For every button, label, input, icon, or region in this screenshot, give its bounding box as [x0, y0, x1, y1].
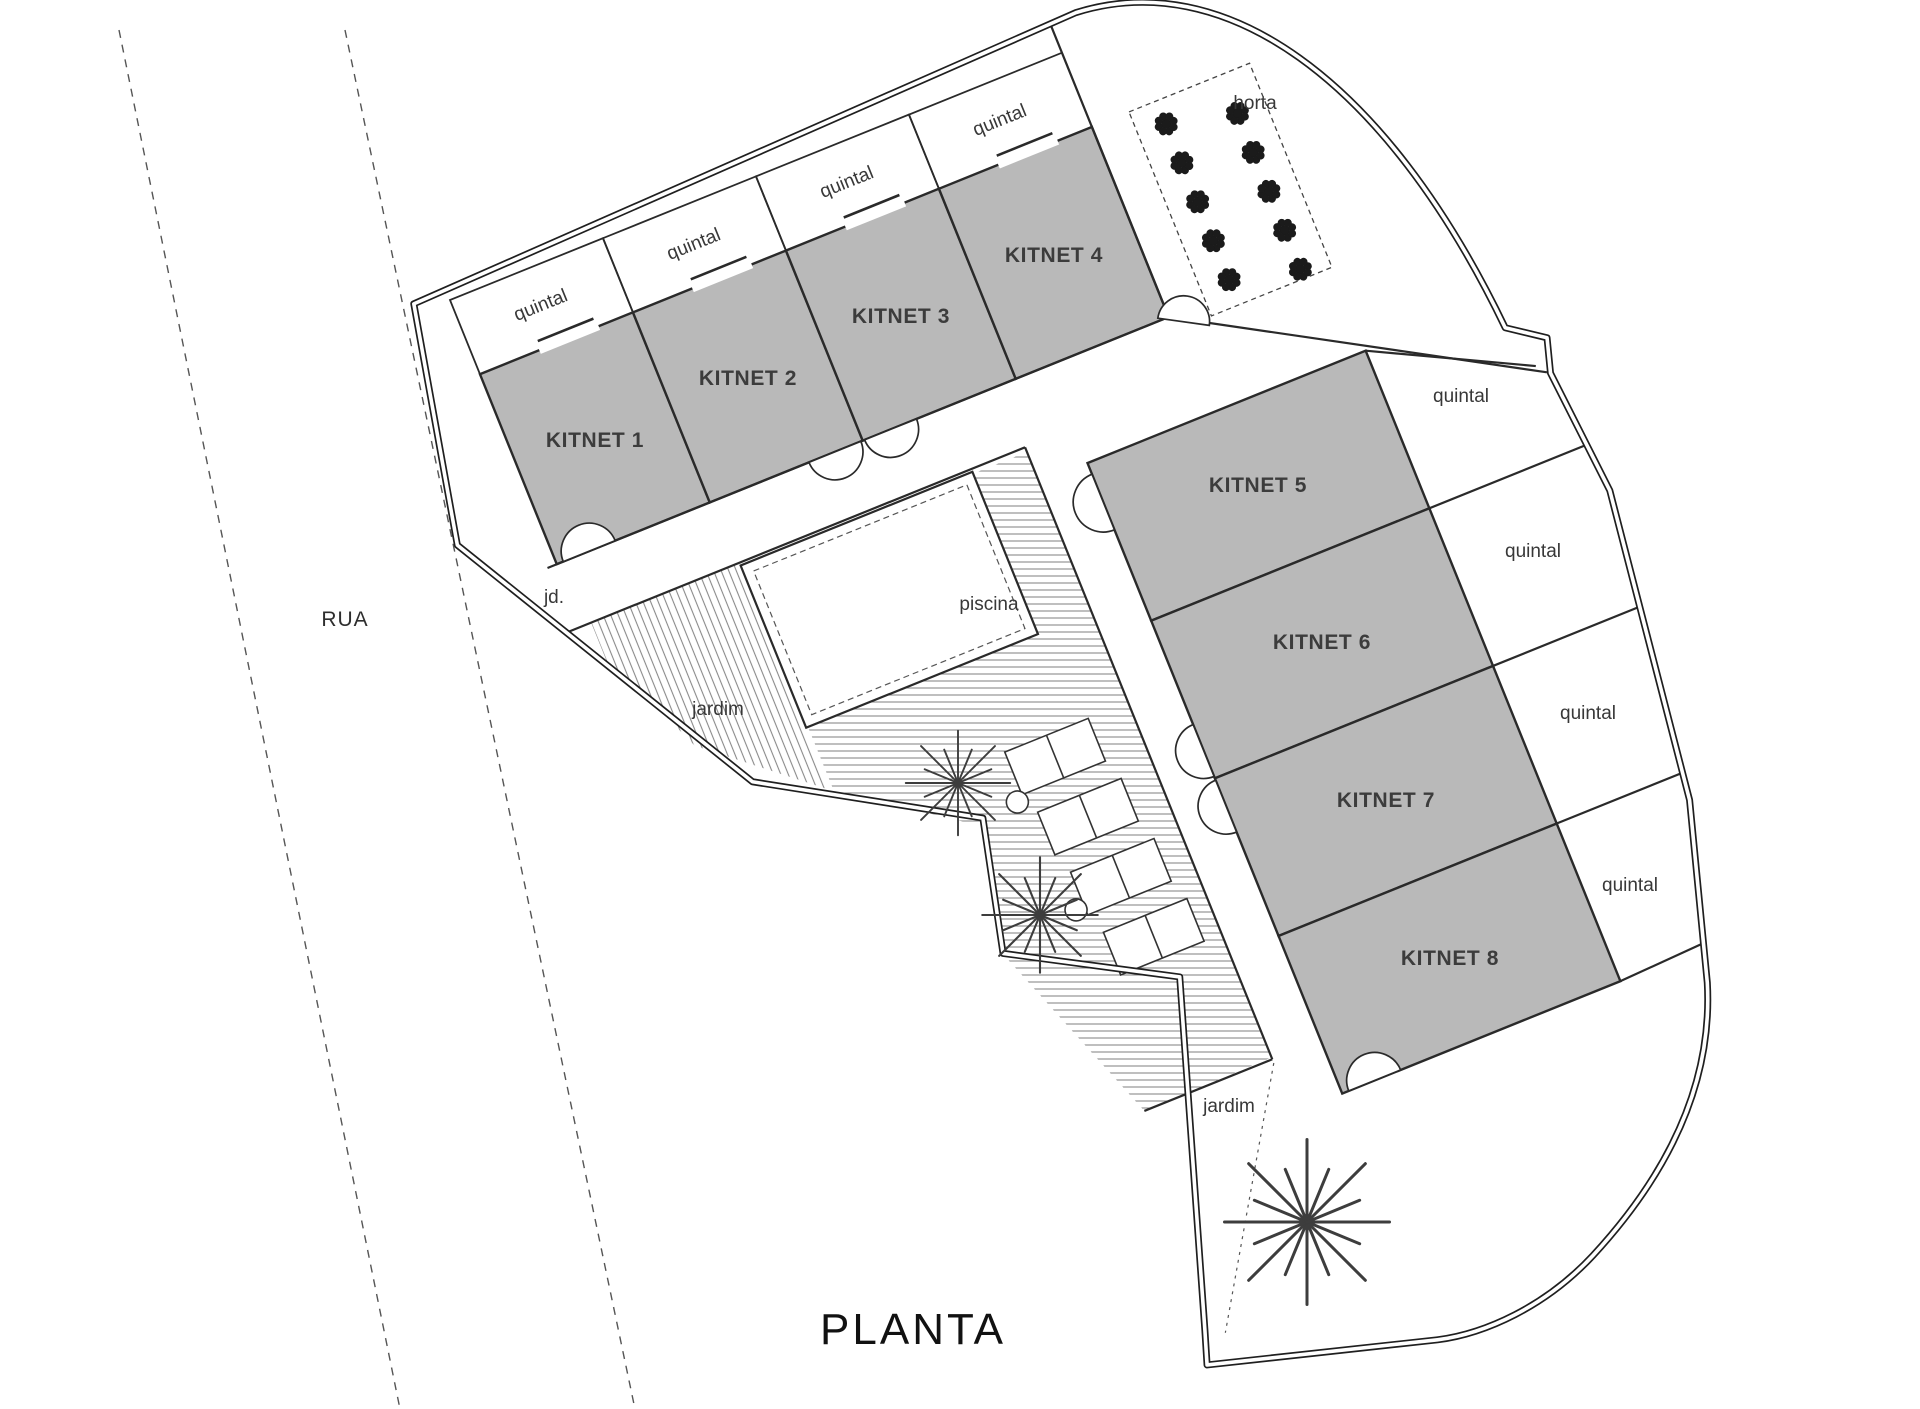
area-label-jd: jd.	[544, 587, 564, 609]
area-label-jardim-bottom: jardim	[1203, 1096, 1255, 1118]
horta-bed	[1129, 63, 1333, 318]
unit-label-kitnet-8: KITNET 8	[1401, 947, 1499, 971]
yard-label-right-7: quintal	[1560, 703, 1616, 725]
palm-tree-1	[906, 731, 1011, 836]
large-tree	[1225, 1140, 1390, 1305]
unit-label-kitnet-4: KITNET 4	[1005, 244, 1103, 268]
unit-label-kitnet-7: KITNET 7	[1337, 789, 1435, 813]
floor-plan-drawing	[0, 0, 1920, 1409]
yard-label-right-5: quintal	[1433, 386, 1489, 408]
area-label-horta: horta	[1233, 93, 1276, 115]
unit-label-kitnet-6: KITNET 6	[1273, 631, 1371, 655]
unit-label-kitnet-5: KITNET 5	[1209, 474, 1307, 498]
building-block	[359, 0, 1883, 1409]
page-title: PLANTA	[820, 1305, 1006, 1355]
area-label-jardim-left: jardim	[692, 699, 744, 721]
yard-label-right-8: quintal	[1598, 875, 1662, 897]
floor-plan-page: quintal quintal quintal quintal KITNET 1…	[0, 0, 1920, 1409]
unit-label-kitnet-2: KITNET 2	[699, 367, 797, 391]
street-label: RUA	[321, 608, 368, 632]
palm-tree-2	[982, 857, 1098, 973]
unit-label-kitnet-1: KITNET 1	[546, 429, 644, 453]
unit-label-kitnet-3: KITNET 3	[852, 305, 950, 329]
yard-label-right-6: quintal	[1505, 541, 1561, 563]
area-label-piscina: piscina	[959, 594, 1018, 616]
